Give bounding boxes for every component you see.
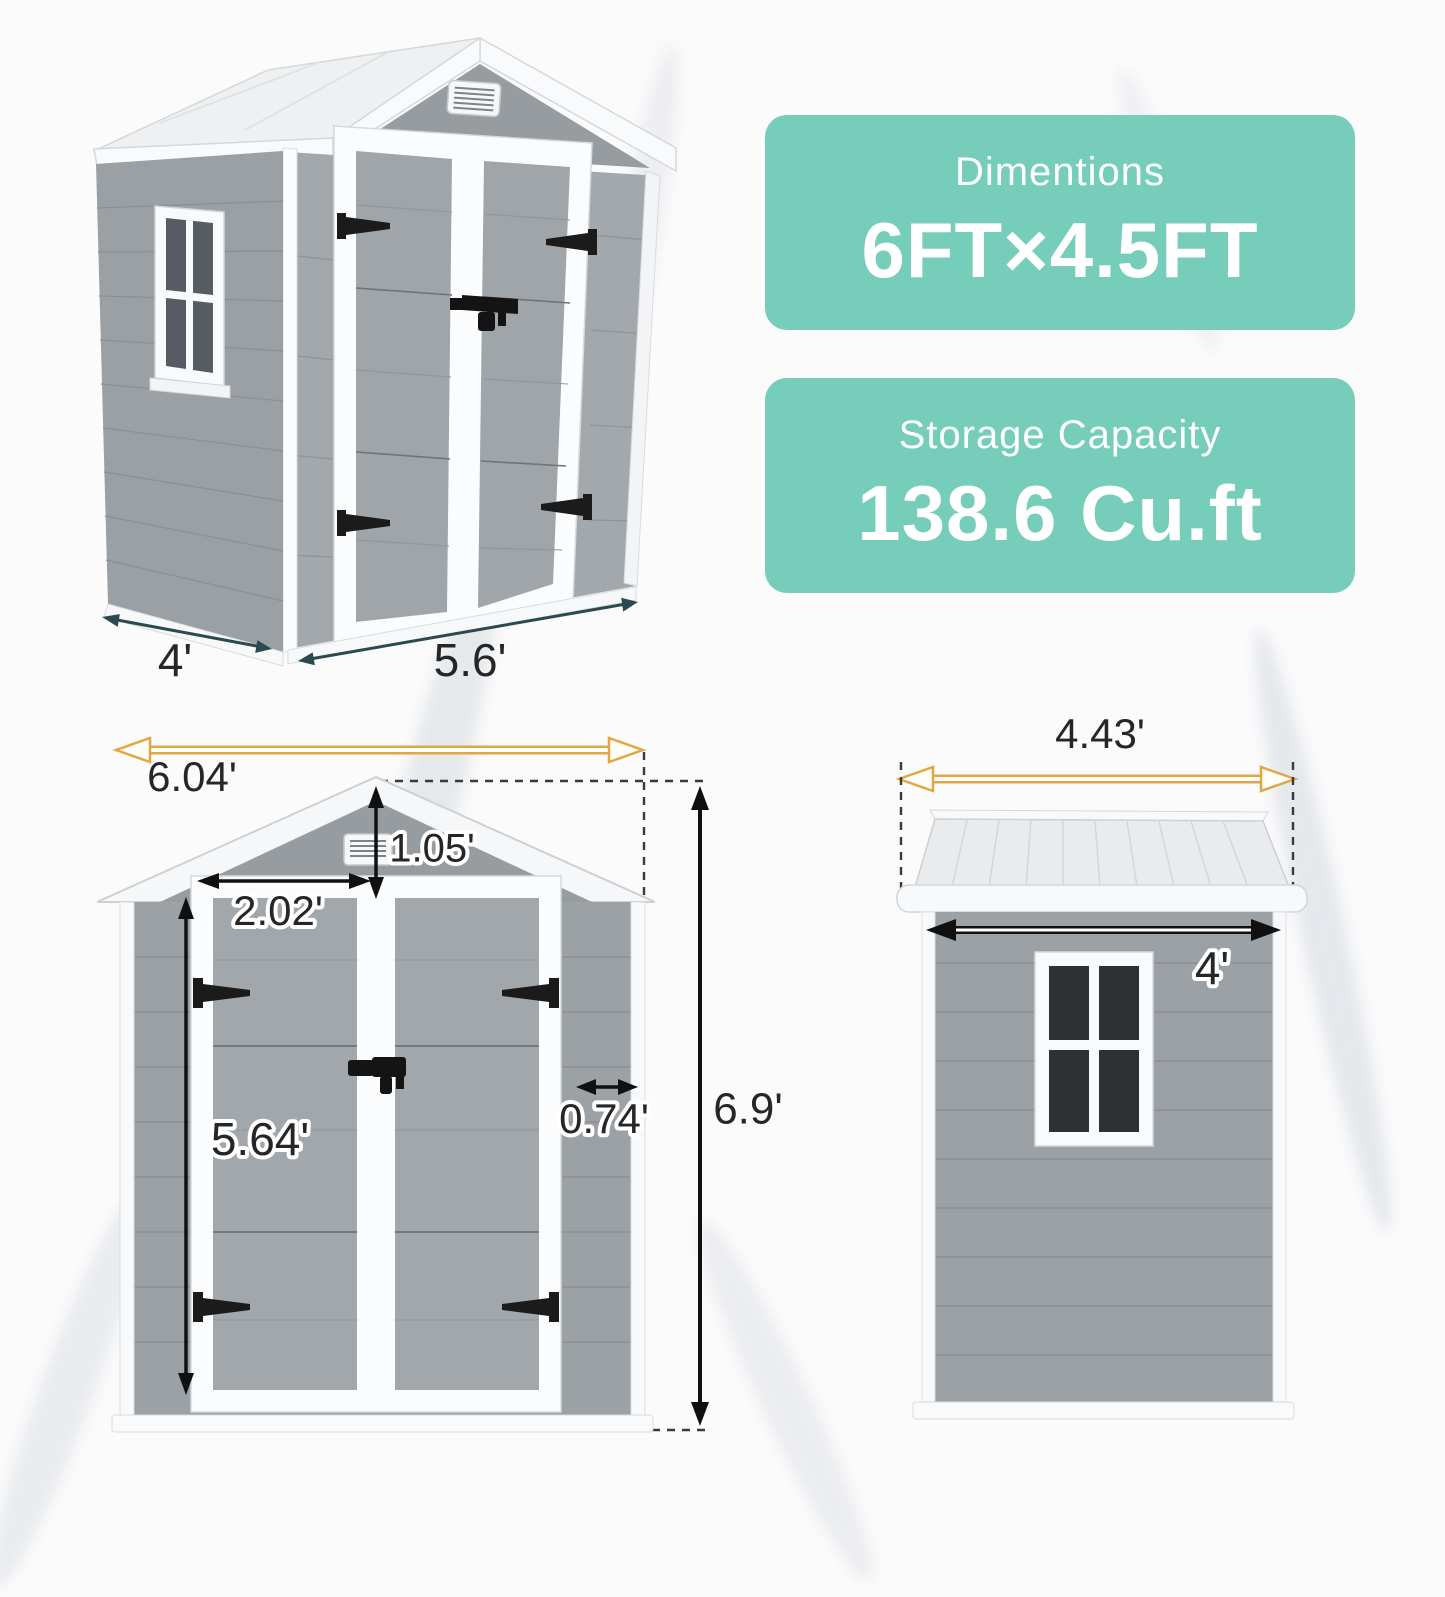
dim-arrow-total-height (691, 786, 709, 1426)
side-elevation-view: 4.43' (897, 710, 1307, 1419)
dim-label-width3d: 5.6' (434, 634, 507, 686)
dim-label-door-height: 5.64' (211, 1113, 309, 1165)
dim-label-side-panel: 0.74' (559, 1095, 649, 1142)
side-roof-fascia (897, 885, 1307, 912)
side-window (1035, 952, 1153, 1146)
wall-trim-left (120, 902, 134, 1415)
side-window-3d (150, 206, 230, 398)
side-wall-trim-left (922, 912, 935, 1404)
dim-label-total-height: 6.9' (713, 1085, 783, 1134)
dim-label-door-width: 2.02' (233, 887, 323, 934)
side-wall-trim-right (1273, 912, 1286, 1404)
dim-label-side-width: 4' (1195, 942, 1229, 994)
dim-label-roof-width: 4.43' (1055, 710, 1145, 757)
side-roof-surface (915, 819, 1289, 887)
front-base-trim (112, 1415, 653, 1432)
dim-label-depth: 4' (158, 634, 192, 686)
corner-trim (283, 148, 297, 652)
product-dimension-infographic: { "cards": [ {"title": "Dimentions", "va… (0, 0, 1445, 1445)
info-card-value: 6FT×4.5FT (862, 205, 1259, 296)
front-elevation-view: 6.04' (97, 738, 783, 1432)
dim-label-front-width: 6.04' (147, 753, 237, 800)
dim-label-gable-height: 1.05' (389, 827, 475, 871)
info-card-title: Storage Capacity (899, 413, 1222, 458)
dim-arrow-roof-width (899, 767, 1295, 791)
wall-trim-right (631, 902, 645, 1415)
front-door-right (395, 898, 539, 1390)
front-gable-vent (344, 834, 392, 865)
info-card-value: 138.6 Cu.ft (857, 468, 1262, 559)
gable-vent (447, 80, 501, 117)
info-card-capacity: Storage Capacity 138.6 Cu.ft (765, 378, 1355, 593)
info-card-title: Dimentions (955, 150, 1165, 195)
shed-3d-view: 4' 5.6' (94, 38, 676, 686)
info-card-dimensions: Dimentions 6FT×4.5FT (765, 115, 1355, 330)
side-base-trim (913, 1402, 1294, 1419)
